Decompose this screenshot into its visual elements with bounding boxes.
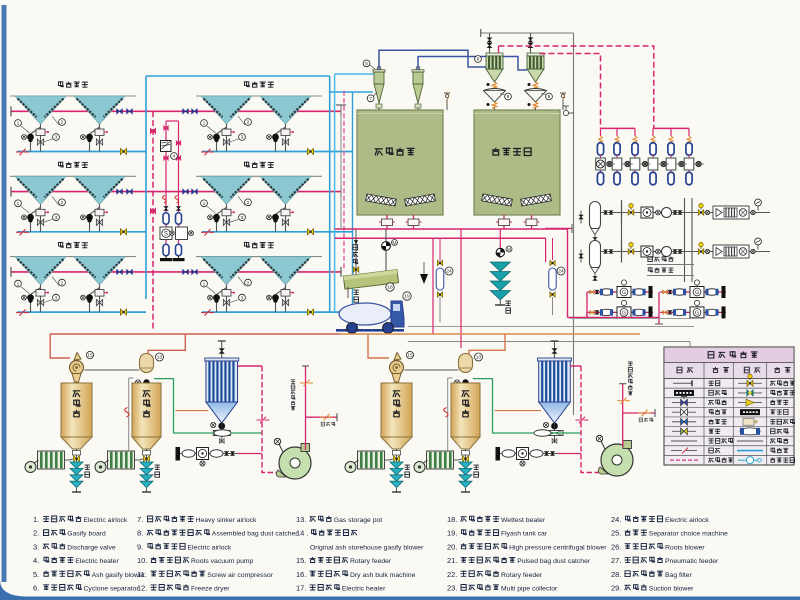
svg-text:Discharge valve: Discharge valve	[67, 544, 116, 551]
svg-text:7.: 7.	[137, 515, 143, 524]
svg-text:15: 15	[407, 353, 413, 359]
svg-text:Freeze dryer: Freeze dryer	[191, 586, 230, 593]
svg-text:21.: 21.	[447, 556, 457, 565]
svg-text:Screw air compressor: Screw air compressor	[207, 572, 273, 579]
svg-text:2: 2	[61, 280, 64, 286]
svg-text:Rotary feeder: Rotary feeder	[350, 558, 392, 565]
svg-text:24: 24	[558, 269, 564, 275]
svg-text:24.: 24.	[611, 515, 621, 524]
svg-text:G: G	[695, 290, 699, 296]
svg-text:9.: 9.	[137, 542, 143, 551]
svg-text:27.: 27.	[611, 556, 621, 565]
svg-text:2: 2	[247, 200, 250, 206]
svg-text:1: 1	[17, 281, 20, 287]
svg-text:3: 3	[241, 135, 244, 141]
svg-text:15: 15	[87, 353, 93, 359]
svg-text:3.: 3.	[33, 542, 39, 551]
svg-text:M: M	[507, 247, 511, 253]
svg-text:Roots blower: Roots blower	[665, 544, 705, 551]
svg-text:Electric airlock: Electric airlock	[665, 517, 709, 524]
svg-text:2: 2	[61, 200, 64, 206]
svg-text:10.: 10.	[137, 556, 147, 565]
svg-text:S: S	[164, 232, 168, 238]
svg-text:16.: 16.	[296, 570, 306, 579]
svg-text:Pneumatic feeder: Pneumatic feeder	[665, 558, 719, 565]
svg-text:1: 1	[203, 281, 206, 287]
svg-text:Flyash tank car: Flyash tank car	[501, 531, 548, 538]
svg-text:1: 1	[17, 201, 20, 207]
svg-text:7: 7	[369, 96, 372, 102]
svg-text:17.: 17.	[296, 584, 306, 593]
svg-text:13.: 13.	[296, 515, 306, 524]
svg-text:Gas storage pot: Gas storage pot	[334, 517, 382, 524]
svg-text:2: 2	[247, 280, 250, 286]
svg-text:28.: 28.	[611, 570, 621, 579]
svg-text:Suction blower: Suction blower	[649, 586, 694, 593]
svg-text:1: 1	[203, 201, 206, 207]
svg-text:5: 5	[365, 61, 368, 67]
svg-text:13: 13	[157, 355, 163, 361]
svg-text:8.: 8.	[137, 529, 143, 538]
svg-text:1: 1	[203, 121, 206, 127]
svg-text:20.: 20.	[447, 542, 457, 551]
svg-text:M: M	[392, 241, 396, 247]
svg-text:Roots vacuum pump: Roots vacuum pump	[191, 558, 254, 565]
svg-text:3: 3	[241, 215, 244, 221]
svg-text:15.: 15.	[296, 556, 306, 565]
svg-text:9: 9	[507, 94, 510, 100]
svg-text:1.: 1.	[33, 515, 39, 524]
svg-text:22.: 22.	[447, 570, 457, 579]
svg-text:G: G	[695, 310, 699, 316]
svg-text:4: 4	[173, 154, 176, 160]
svg-text:G: G	[622, 310, 626, 316]
svg-text:2: 2	[247, 120, 250, 126]
svg-text:3: 3	[55, 295, 58, 301]
svg-text:18: 18	[387, 285, 393, 291]
svg-text:Gasify board: Gasify board	[67, 531, 106, 538]
svg-text:Multi pipe collector: Multi pipe collector	[501, 586, 558, 593]
svg-text:13: 13	[476, 355, 482, 361]
svg-text:3: 3	[55, 135, 58, 141]
svg-text:14 .: 14 .	[296, 529, 309, 538]
svg-text:Pulsed bag dust catcher: Pulsed bag dust catcher	[517, 558, 591, 565]
svg-text:Cyclone separator: Cyclone separator	[84, 586, 140, 593]
svg-text:Rotary feeder: Rotary feeder	[501, 572, 543, 579]
svg-text:1: 1	[17, 121, 20, 127]
svg-text:5.: 5.	[33, 570, 39, 579]
svg-text:9: 9	[548, 94, 551, 100]
svg-text:23.: 23.	[447, 584, 457, 593]
svg-text:12.: 12.	[137, 584, 147, 593]
svg-text:Bag filter: Bag filter	[665, 572, 693, 579]
svg-text:Separator choice machine: Separator choice machine	[649, 531, 728, 538]
svg-text:11.: 11.	[137, 570, 147, 579]
svg-text:19.: 19.	[447, 529, 457, 538]
svg-text:3: 3	[55, 215, 58, 221]
svg-text:Wettest beater: Wettest beater	[501, 517, 546, 524]
svg-text:Heavy sinker airlock: Heavy sinker airlock	[196, 517, 257, 524]
svg-text:Electric airlock: Electric airlock	[188, 544, 232, 551]
svg-text:Dry ash bulk machine: Dry ash bulk machine	[350, 572, 416, 579]
svg-text:Electric heater: Electric heater	[342, 586, 386, 593]
svg-text:4.: 4.	[33, 556, 39, 565]
svg-text:18.: 18.	[447, 515, 457, 524]
svg-text:25.: 25.	[611, 529, 621, 538]
svg-text:G: G	[622, 290, 626, 296]
svg-text:Assembled bag dust catcher: Assembled bag dust catcher	[212, 531, 299, 538]
svg-text:19: 19	[404, 294, 410, 300]
svg-text:High pressure centrifugal blow: High pressure centrifugal blower	[509, 544, 607, 551]
svg-text:8: 8	[477, 57, 480, 63]
svg-text:29.: 29.	[611, 584, 621, 593]
svg-text:Electric heater: Electric heater	[75, 558, 119, 565]
svg-text:24: 24	[446, 269, 452, 275]
svg-text:2: 2	[61, 120, 64, 126]
svg-text:Original ash storehouse gasify: Original ash storehouse gasify blower	[310, 544, 424, 551]
svg-text:3: 3	[241, 295, 244, 301]
svg-text:Electric airlock: Electric airlock	[84, 517, 128, 524]
svg-text:6.: 6.	[33, 584, 39, 593]
svg-text:2.: 2.	[33, 529, 39, 538]
svg-text:26.: 26.	[611, 542, 621, 551]
